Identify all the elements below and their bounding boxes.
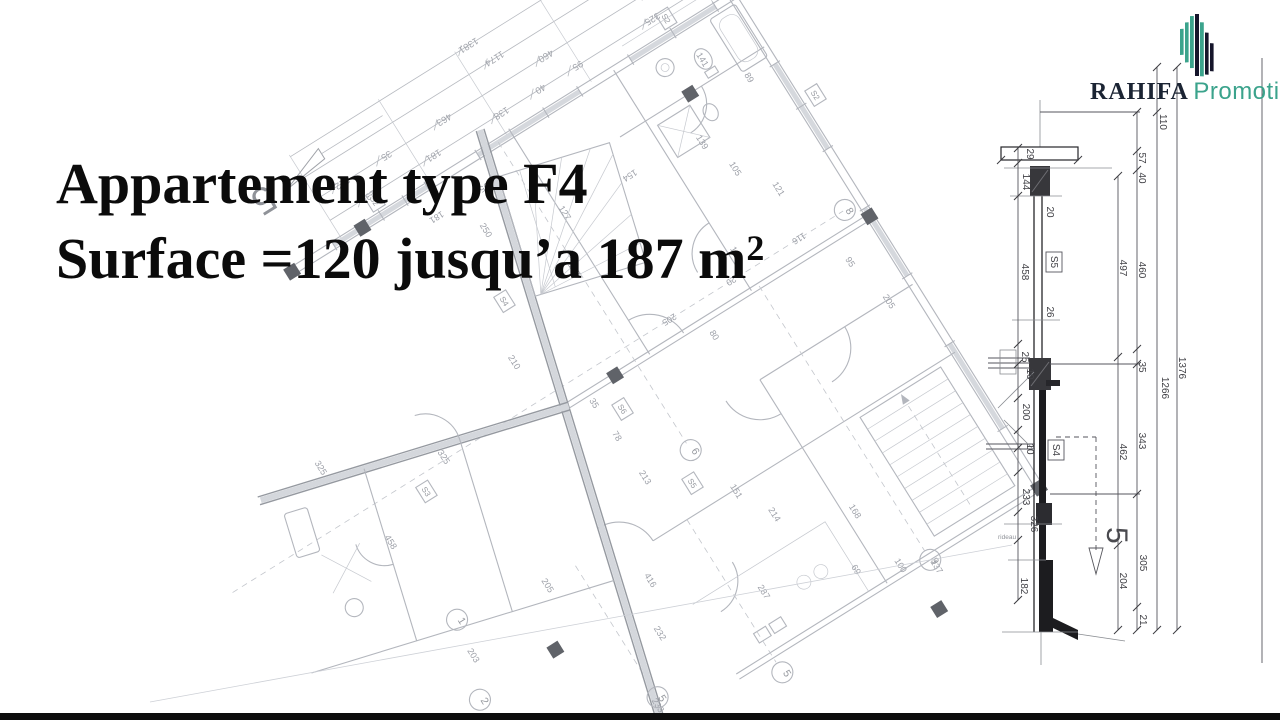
section-number: 5 (1100, 527, 1133, 544)
plan-staircase-lower (860, 367, 1015, 536)
dimension-tick (638, 0, 649, 1)
section-dimension-label: 343 (1136, 433, 1147, 450)
floor-plan-drawing: 5 (0, 0, 1280, 720)
dimension-label: 95 (843, 255, 857, 269)
plan-columns (283, 0, 1074, 720)
section-dimension-label: 35 (1136, 361, 1147, 373)
section-dimension-label: 204 (1117, 573, 1128, 590)
dimension-label: 168 (847, 502, 863, 520)
floor-plan: 5 (35, 0, 1090, 720)
section-dimension-label: 29 (1024, 148, 1035, 160)
dimension-label: 35 (587, 396, 601, 410)
dimension-label: 416 (642, 571, 658, 589)
section-dimension-label: 458 (1019, 264, 1030, 281)
window-tag: S3 (416, 480, 437, 503)
logo-bar (1200, 22, 1204, 76)
company-logo: RAHIFA Promotion (1080, 6, 1276, 106)
logo-brand-text: RAHIFA (1090, 79, 1189, 105)
dimension-label: 95 (570, 58, 585, 73)
window-tag: S5 (682, 472, 703, 495)
wall-section-drawing: 5 rideau 2914420458262510200102333261824… (986, 58, 1262, 665)
title-superscript: 2 (746, 228, 764, 268)
section-dimension-label: 110 (1157, 114, 1168, 130)
plan-fixtures (435, 4, 1037, 674)
dimension-label: 460 (536, 47, 555, 65)
title-line-2: Surface =120 jusqu’a 187 m2 (56, 221, 764, 296)
dimension-label: 80 (707, 328, 721, 342)
logo-tagline-text: Promotion (1193, 78, 1280, 105)
dimension-label: 205 (660, 311, 678, 327)
dimension-label: 78 (610, 429, 624, 443)
dimension-label: 116 (790, 231, 807, 247)
dimension-label: 325 (436, 448, 452, 466)
dimension-label: 89 (742, 71, 756, 85)
dimension-label: 138 (492, 104, 511, 122)
dimension-label: 287 (756, 583, 772, 601)
window-tag-label: S4 (1050, 444, 1061, 457)
logo-bar (1185, 22, 1189, 62)
section-dimension-label: 233 (1020, 489, 1031, 506)
slide: 5 (0, 0, 1280, 720)
dimension-label: 205 (539, 576, 555, 594)
dimension-label: 210 (506, 353, 522, 371)
section-dimension-label: 40 (1136, 172, 1147, 184)
dimension-label: 325 (313, 459, 329, 477)
dimension-label: 121 (770, 180, 786, 198)
section-footing (1041, 560, 1053, 632)
section-note: rideau (998, 534, 1016, 541)
section-dimension-label: 497 (1117, 260, 1128, 277)
title-line-1: Appartement type F4 (56, 146, 764, 221)
bottom-bar (0, 713, 1280, 720)
section-dimension-label: 1266 (1159, 377, 1170, 400)
section-dimension-label: 25 (1019, 351, 1030, 363)
section-dimension-label: 57 (1136, 152, 1147, 164)
section-dimension-label: 460 (1136, 262, 1147, 279)
window-tag-label: S5 (1048, 256, 1059, 269)
window-tag: S2 (805, 84, 826, 107)
section-dimension-label: 182 (1018, 578, 1029, 595)
section-dimension-label: 144 (1020, 174, 1031, 191)
section-dimension-label: 26 (1044, 306, 1055, 318)
dimension-label: 141 (694, 50, 710, 68)
section-dimension-label: 305 (1137, 555, 1148, 572)
logo-bar (1205, 33, 1209, 75)
logo-bar (1195, 14, 1199, 76)
section-dimension-label: 1376 (1176, 357, 1187, 380)
dimension-label: 203 (465, 646, 481, 664)
dimension-label: 214 (766, 505, 782, 523)
logo-mark (1080, 6, 1276, 78)
section-dimension-label: 462 (1117, 444, 1128, 461)
section-dimension-label: 326 (1028, 516, 1039, 533)
title-line-2-text: Surface =120 jusqu’a 187 m (56, 226, 746, 291)
logo-bar (1210, 43, 1214, 71)
dimension-label: 458 (383, 533, 399, 551)
dimension-label: 40 (533, 81, 548, 96)
plan-grid-axes (105, 7, 1027, 720)
window-tag: S6 (612, 398, 633, 421)
section-dimension-label: 21 (1137, 614, 1148, 626)
section-dimension-label: 10 (1024, 368, 1035, 380)
dimension-label: 463 (434, 110, 453, 128)
section-slab (1001, 147, 1078, 160)
window-tag: S4 (1048, 440, 1064, 460)
slide-title: Appartement type F4 Surface =120 jusqu’a… (56, 146, 764, 297)
window-tag: S5 (1046, 252, 1062, 272)
logo-bar (1180, 29, 1184, 55)
logo-bar (1190, 16, 1194, 68)
section-dimension-label: 10 (1024, 443, 1035, 455)
dimension-label: 213 (637, 468, 653, 486)
dimension-label: 1174 (483, 48, 506, 68)
dimension-label: 232 (652, 624, 668, 642)
section-dimension-label: 200 (1020, 404, 1031, 421)
section-dimension-label: 20 (1044, 206, 1055, 218)
plan-extension-line (150, 545, 1012, 702)
